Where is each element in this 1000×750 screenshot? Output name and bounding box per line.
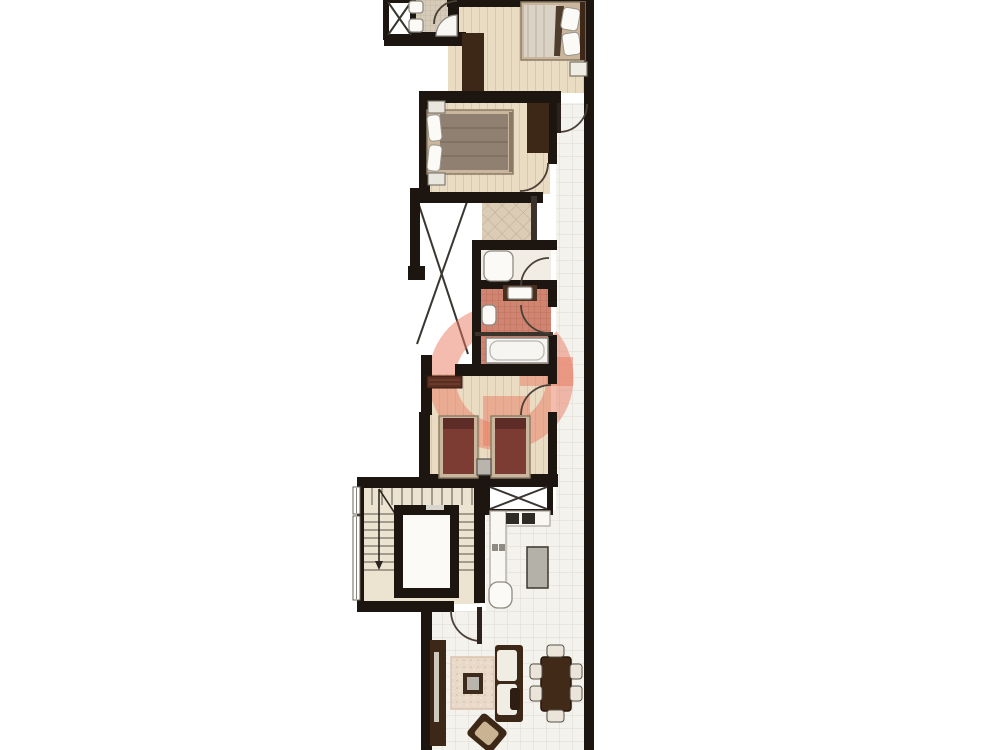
dining-chair: [570, 664, 582, 679]
kitchen-shaft: [487, 484, 550, 512]
pillow-dark: [495, 418, 526, 429]
dressing-floor: [482, 200, 534, 242]
wall-void-left: [410, 188, 420, 274]
nightstand: [477, 459, 491, 475]
sofa-cushion: [497, 650, 517, 681]
wall-wc-top: [472, 240, 557, 250]
dining-chair: [530, 664, 542, 679]
door-leaf: [477, 607, 482, 644]
hallway: [427, 376, 462, 388]
hob-burner: [522, 513, 535, 524]
wall-corridor-a: [548, 103, 557, 164]
dining-chair: [547, 645, 564, 657]
floor-plan-drawing: [0, 0, 1000, 750]
bed-duvet: [443, 429, 474, 474]
elevator-door: [426, 505, 444, 510]
wall-dressing-right: [531, 196, 537, 242]
nightstand: [570, 62, 587, 76]
floor-plan-page: [0, 0, 1000, 750]
toilet: [482, 305, 496, 325]
wall-pink-left: [472, 287, 481, 366]
door-leaf: [557, 103, 561, 133]
wash-basin: [508, 287, 532, 299]
wall-bed2-south: [412, 192, 543, 203]
pillow: [562, 32, 582, 56]
toilet: [409, 1, 423, 13]
wall-void-pier: [408, 266, 425, 280]
elevator-cabin: [403, 515, 450, 588]
coffee-table-top: [467, 677, 479, 690]
pillow-dark: [443, 418, 474, 429]
island-table: [527, 547, 548, 588]
wall-corridor-b: [548, 285, 557, 307]
hob-burner: [506, 513, 519, 524]
pillow: [427, 114, 443, 141]
dining-chair: [570, 686, 582, 701]
dining-chair: [547, 710, 564, 722]
sofa-throw: [510, 688, 520, 710]
wall-corridor-c: [548, 335, 557, 384]
tv-screen: [434, 652, 439, 722]
wardrobe: [462, 33, 484, 91]
wall-stair-right: [474, 477, 485, 603]
footboard: [509, 112, 513, 172]
shower-tray: [484, 251, 513, 281]
dining-table: [541, 657, 571, 711]
wardrobe: [527, 103, 549, 153]
bidet: [409, 19, 423, 32]
tap-icon: [492, 544, 498, 551]
sofa: [495, 645, 523, 722]
wall-stair-bottom: [357, 601, 454, 612]
wall-under-tub: [455, 364, 552, 376]
shower-room: [484, 251, 513, 281]
kitchen-sink: [489, 582, 512, 608]
headboard: [580, 2, 585, 60]
bed-duvet: [495, 429, 526, 474]
bed-duvet: [524, 5, 558, 57]
sideboard: [427, 376, 462, 388]
tap-icon: [499, 544, 505, 551]
nightstand: [428, 101, 445, 113]
dining-chair: [530, 686, 542, 701]
pillow: [560, 7, 581, 32]
nightstand: [428, 173, 445, 185]
pillow: [427, 144, 443, 171]
